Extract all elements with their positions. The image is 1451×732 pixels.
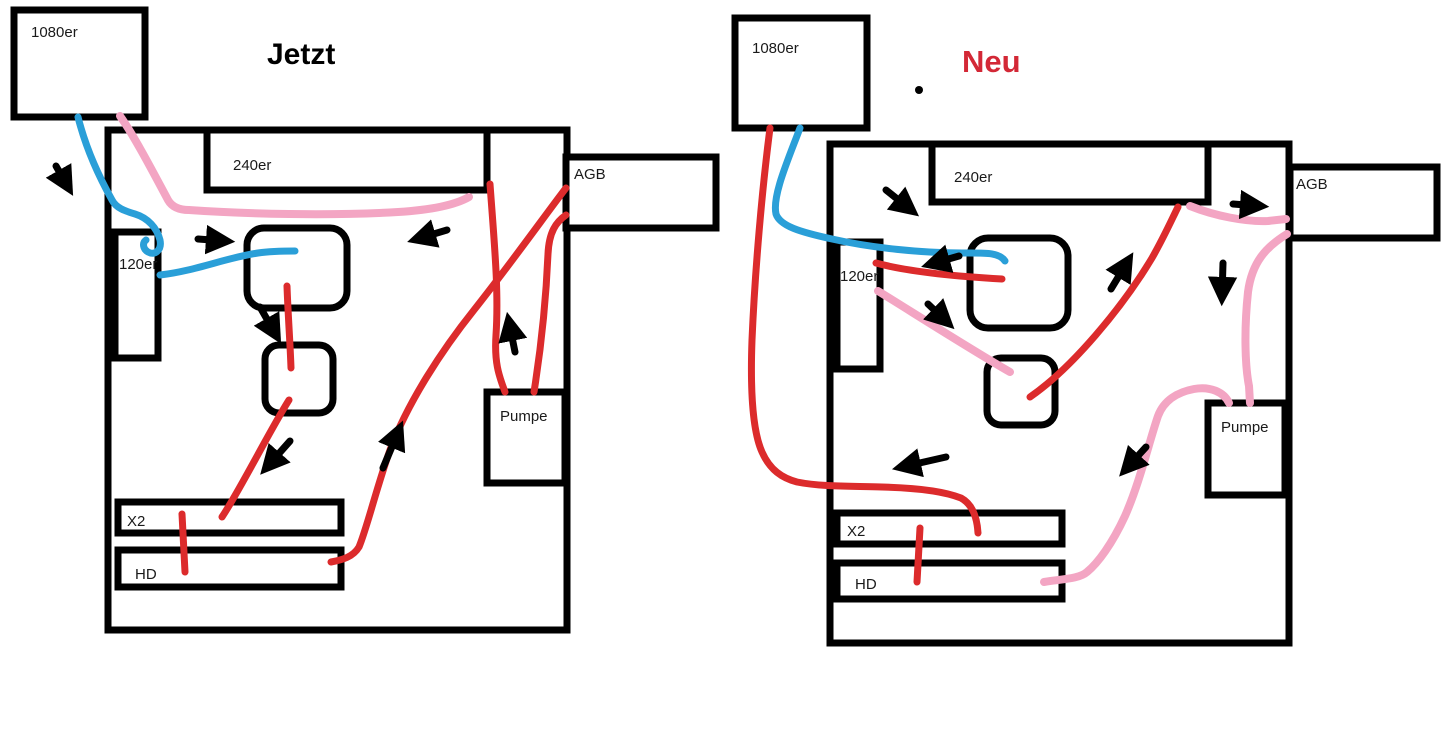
right-arrow-right-to-agb	[1233, 204, 1259, 206]
right-pumpe-label: Pumpe	[1221, 419, 1269, 436]
left-x2-label: X2	[127, 513, 145, 530]
right-diagram-title: Neu	[962, 44, 1021, 80]
right-x2-label: X2	[847, 523, 865, 540]
right-pumpe-box	[1208, 403, 1285, 495]
right-240er-label: 240er	[954, 169, 992, 186]
right-hd-label: HD	[855, 576, 877, 593]
left-pumpe-label: Pumpe	[500, 408, 548, 425]
left-tube-red-cpu-to-gpu	[287, 286, 291, 368]
left-hd-label: HD	[135, 566, 157, 583]
right-1080er-box	[735, 18, 867, 128]
diagram-neu	[735, 18, 1437, 643]
left-arrow-right-to-cpu	[198, 239, 225, 241]
right-arrow-down-from-agb	[1222, 263, 1223, 296]
left-diagram-title: Jetzt	[267, 38, 335, 72]
left-pumpe-box	[487, 392, 565, 483]
paint-canvas: Jetzt Neu 1080er 240er AGB 120er Pumpe X…	[0, 0, 1451, 732]
right-agb-label: AGB	[1296, 176, 1328, 193]
left-120er-label: 120er	[119, 256, 157, 273]
right-120er-label: 120er	[840, 268, 878, 285]
diagram-jetzt	[14, 10, 716, 630]
right-x2-box	[837, 513, 1062, 544]
left-1080er-label: 1080er	[31, 24, 78, 41]
diagram-canvas	[0, 0, 1451, 732]
stray-dot	[915, 86, 923, 94]
left-tube-red-x2-hd-link	[182, 514, 185, 572]
left-gpu-block	[265, 345, 333, 413]
left-cpu-block	[247, 228, 347, 308]
left-240er-label: 240er	[233, 157, 271, 174]
right-tube-red-x2-hd-link	[917, 528, 920, 582]
right-1080er-label: 1080er	[752, 40, 799, 57]
left-agb-label: AGB	[574, 166, 606, 183]
left-arrow-down-beside-1080er	[56, 166, 68, 187]
